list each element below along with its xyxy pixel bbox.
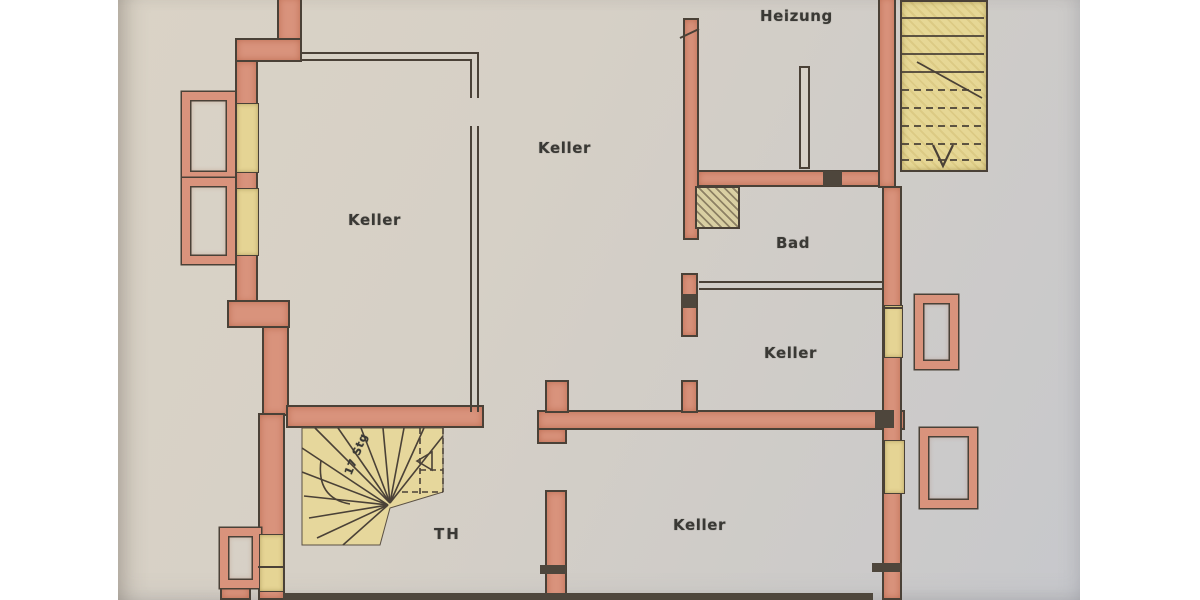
- wall-exterior-east-main: [882, 186, 902, 600]
- room-label-heizung: Heizung: [760, 7, 833, 25]
- wall-exterior-west-jog-lower: [227, 300, 290, 328]
- room-label-keller-mid: Keller: [764, 344, 817, 362]
- wall-exterior-west-jog-upper: [235, 38, 302, 62]
- wall-pier-mid-east: [875, 410, 894, 428]
- wall-joint-bottom-east: [872, 563, 902, 572]
- room-label-keller-left: Keller: [348, 211, 401, 229]
- window-east-upper: [884, 305, 903, 358]
- wall-exterior-west-main: [235, 60, 258, 304]
- stair-arrow-head: [417, 452, 432, 470]
- wall-pier-corridor: [681, 294, 696, 308]
- bottom-wall-edge: [283, 593, 873, 600]
- partition-top-outer: [302, 53, 478, 98]
- wall-joint-bottom-mid: [540, 565, 566, 574]
- exterior-stairs: [900, 0, 988, 172]
- chimney: [695, 186, 740, 229]
- wall-corridor-stub-lower: [681, 380, 698, 413]
- wall-exterior-west-mid: [262, 326, 289, 416]
- room-label-keller-top: Keller: [538, 139, 591, 157]
- light-well-east-upper: [915, 295, 958, 369]
- stair-count-note: 17 Stg: [342, 431, 370, 476]
- floor-plan-photo: Heizung Keller Keller Bad Keller Keller …: [118, 0, 1080, 600]
- window-southwest: [259, 534, 284, 592]
- wall-interior-mid-horizontal: [537, 410, 905, 430]
- room-label-bad: Bad: [776, 234, 810, 252]
- window-west-lower: [236, 188, 259, 256]
- room-label-th: TH: [434, 525, 461, 543]
- light-well-west-lower: [182, 178, 235, 264]
- wall-heizung-south: [697, 170, 883, 187]
- interior-winder-stair: [302, 428, 443, 545]
- light-well-southwest: [220, 528, 261, 588]
- partition-top-inner: [302, 60, 471, 98]
- room-label-keller-bottom: Keller: [673, 516, 726, 534]
- light-well-east-lower: [920, 428, 977, 508]
- window-east-lower: [884, 440, 905, 494]
- wall-bottom-center-stub: [545, 490, 567, 600]
- wall-interior-mid-stub-up: [545, 380, 569, 413]
- heizung-flue: [800, 67, 809, 168]
- wall-interior-mid-notch: [537, 428, 567, 444]
- window-west-upper: [236, 103, 259, 173]
- light-well-west-upper: [182, 92, 235, 180]
- wall-pier-heizung: [823, 171, 842, 186]
- wall-stairwell-north: [286, 405, 484, 428]
- page: { "labels": { "heizung": "Heizung", "kel…: [0, 0, 1200, 600]
- wall-exterior-east-top: [878, 0, 896, 188]
